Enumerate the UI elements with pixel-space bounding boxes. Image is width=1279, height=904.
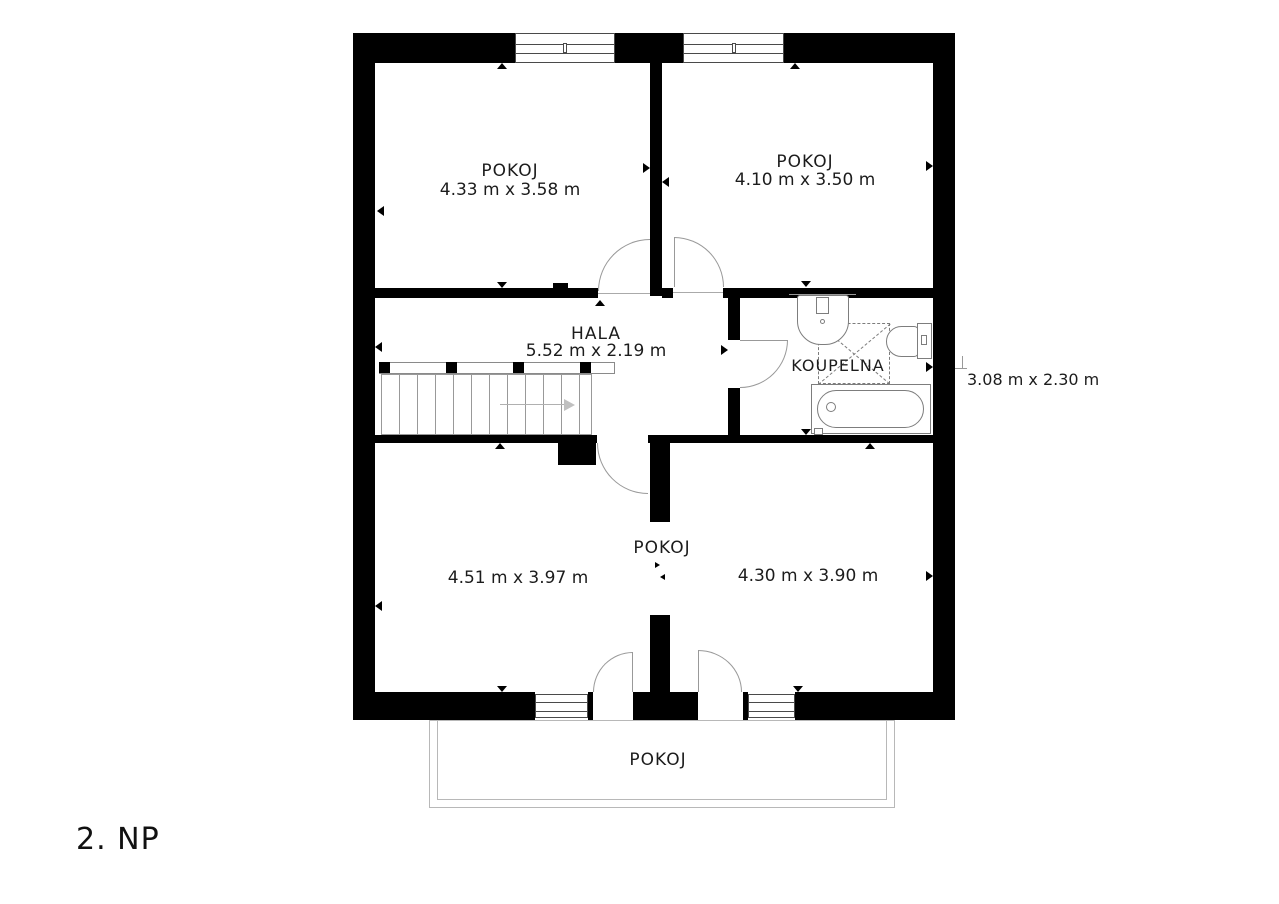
floor-level-label: 2. NP [76, 822, 160, 857]
dimension-tick [655, 562, 660, 568]
wall-divider-stub-top [650, 443, 670, 522]
dimension-leader-line [962, 356, 963, 369]
dimension-tick [497, 282, 507, 288]
sink-faucet [816, 297, 829, 314]
door-threshold [673, 292, 723, 293]
floor-plan: POKOJ 4.33 m x 3.58 m POKOJ 4.10 m x 3.5… [0, 0, 1279, 904]
wall-bottom-right-segment [795, 692, 955, 720]
door-swing-arc-balcony-right [698, 650, 742, 692]
bathtub-drain [826, 402, 836, 412]
window-top-right [683, 33, 784, 63]
wall-top-right-segment [784, 33, 955, 63]
dimension-tick [377, 206, 384, 216]
stair-direction-arrow-icon [564, 399, 575, 411]
dimension-tick [497, 686, 507, 692]
toilet-bowl [886, 326, 919, 357]
bathtub-tap [814, 428, 823, 435]
room-dims-bottom-right: 4.30 m x 3.90 m [738, 567, 879, 586]
door-swing-arc-balcony-left [593, 652, 633, 692]
wall-bottom-left-segment [353, 692, 535, 720]
wall-between-top-rooms [650, 63, 662, 296]
wall-hall-bottom-right [648, 435, 933, 443]
dimension-tick [801, 281, 811, 287]
dimension-tick [865, 443, 875, 449]
sink-drain [820, 319, 825, 324]
wall-right-outer [933, 33, 955, 720]
window-mullion [732, 43, 736, 53]
hall-dims: 5.52 m x 2.19 m [526, 342, 667, 361]
dimension-tick [643, 163, 650, 173]
dimension-tick [662, 177, 669, 187]
dimension-tick [926, 362, 933, 372]
window-bottom-left [535, 694, 588, 718]
wall-left-outer [353, 33, 375, 720]
wall-hall-bottom-left [375, 435, 597, 443]
wall-bottom-center-segment [633, 692, 698, 720]
balcony-room-label: POKOJ [629, 751, 686, 770]
dimension-tick [926, 161, 933, 171]
window-glass [748, 702, 795, 712]
dimension-tick [375, 342, 382, 352]
dimension-leader-line [955, 368, 967, 369]
window-bottom-right [748, 694, 795, 718]
railing-post [513, 362, 524, 373]
room-dims-top-right: 4.10 m x 3.50 m [735, 171, 876, 190]
dimension-tick [660, 574, 665, 580]
wall-stair-end-block [558, 443, 596, 465]
room-dims-top-left: 4.33 m x 3.58 m [440, 181, 581, 200]
stair-direction-line [500, 404, 564, 405]
wall-top-left-segment [353, 33, 515, 63]
dimension-tick [801, 429, 811, 435]
room-label-top-right: POKOJ [776, 153, 833, 172]
dimension-tick [790, 63, 800, 69]
window-top-left [515, 33, 615, 63]
window-glass [535, 702, 588, 712]
door-swing-arc-bathroom [740, 340, 788, 388]
dimension-tick [926, 571, 933, 581]
room-dims-bottom-left: 4.51 m x 3.97 m [448, 569, 589, 588]
wall-top-mid-segment [615, 33, 683, 63]
bathroom-dims: 3.08 m x 2.30 m [967, 371, 1099, 389]
toilet-flush-button [921, 335, 927, 345]
window-mullion [563, 43, 567, 53]
wall-hall-top-mid [662, 288, 673, 298]
dimension-tick [495, 443, 505, 449]
door-swing-arc-top-left-room [598, 239, 650, 291]
wall-pillar [553, 283, 568, 298]
railing-post [580, 362, 591, 373]
wall-divider-stub-bottom [650, 615, 670, 692]
wall-bathroom-left-lower [728, 388, 740, 435]
door-swing-arc-top-right-room [674, 237, 724, 287]
door-threshold [598, 293, 650, 294]
dimension-tick [497, 63, 507, 69]
room-label-bottom: POKOJ [633, 539, 690, 558]
railing-post [446, 362, 457, 373]
dimension-tick [721, 345, 728, 355]
door-swing-arc-bottom-room [597, 443, 648, 494]
wall-bathroom-left-upper [728, 298, 740, 340]
wall-bottom-post-left [588, 692, 593, 720]
railing-post [379, 362, 390, 373]
dimension-tick [595, 300, 605, 306]
bathroom-label: KOUPELNA [791, 357, 885, 375]
dimension-tick [793, 686, 803, 692]
room-label-top-left: POKOJ [481, 162, 538, 181]
dimension-tick [375, 601, 382, 611]
